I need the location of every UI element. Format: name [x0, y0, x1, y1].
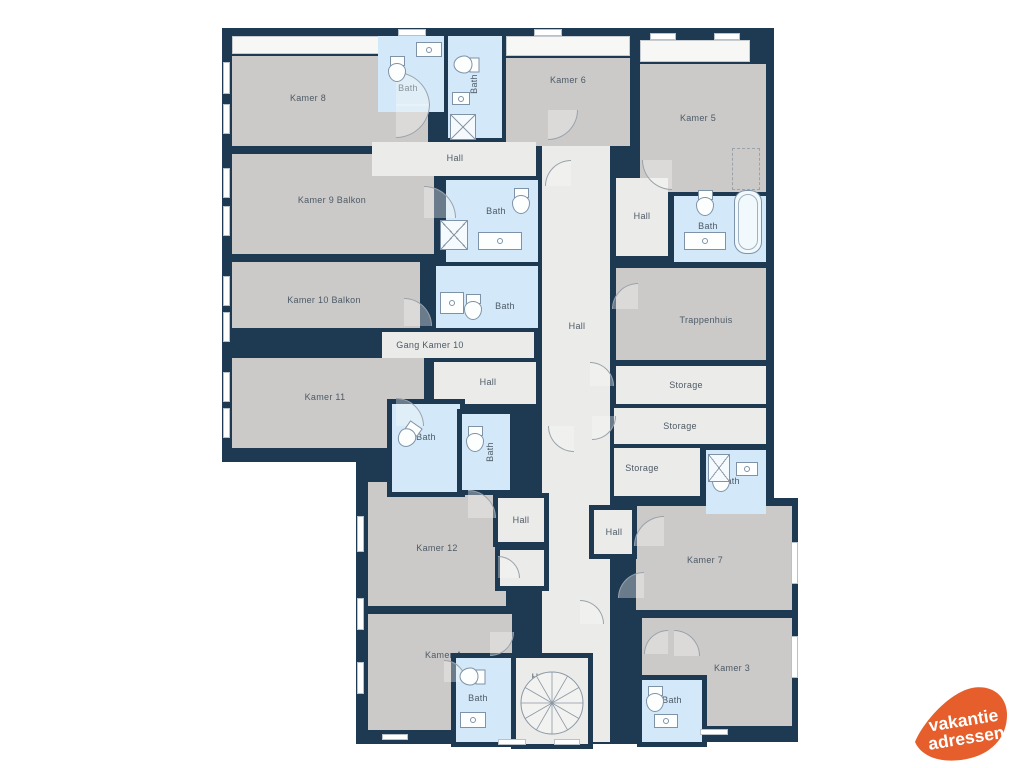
window-mark — [398, 29, 426, 36]
label-kamer-7: Kamer 7 — [687, 555, 723, 565]
toilet-icon — [461, 668, 486, 686]
toilet-icon — [388, 56, 406, 81]
window-mark — [791, 636, 798, 678]
window-mark — [554, 739, 580, 745]
floor-plan-page: Kamer 8Kamer 9 BalkonKamer 10 BalkonKame… — [0, 0, 1024, 768]
sink-icon — [416, 42, 442, 57]
label-storage-3: Storage — [625, 463, 659, 473]
shower-icon — [708, 454, 730, 482]
window-mark — [223, 62, 230, 94]
toilet-bowl — [464, 301, 482, 320]
label-kamer-11: Kamer 11 — [305, 392, 346, 402]
label-kamer-8: Kamer 8 — [290, 93, 326, 103]
balkon-kamer-6 — [506, 36, 630, 56]
area-hall-upper-right: Hall — [616, 178, 668, 256]
window-mark — [700, 729, 728, 735]
label-storage-2: Storage — [663, 421, 697, 431]
label-hall-central: Hall — [569, 321, 586, 331]
toilet-bowl — [454, 56, 473, 74]
area-storage-1: Storage — [616, 366, 766, 404]
label-kamer-5: Kamer 5 — [680, 113, 716, 123]
shower-icon — [440, 220, 468, 250]
area-hall-mid: Hall — [434, 362, 536, 404]
floor-plan: Kamer 8Kamer 9 BalkonKamer 10 BalkonKame… — [0, 0, 1024, 768]
label-kamer-6: Kamer 6 — [550, 75, 586, 85]
sink-icon — [654, 714, 678, 728]
label-bath-kamer-3: Bath — [662, 695, 682, 705]
label-bath-kamer-4: Bath — [468, 693, 488, 703]
label-storage-1: Storage — [669, 380, 703, 390]
label-bath-kamer-6: Bath — [469, 74, 479, 94]
window-mark — [223, 312, 230, 342]
sink-icon — [460, 712, 486, 728]
toilet-bowl — [466, 433, 484, 452]
label-kamer-3: Kamer 3 — [714, 663, 750, 673]
area-storage-3: Storage — [614, 448, 700, 496]
label-hall-kamer-7: Hall — [606, 527, 623, 537]
area-storage-2: Storage — [614, 408, 766, 444]
window-mark — [650, 33, 676, 40]
toilet-bowl — [388, 63, 406, 82]
window-mark — [498, 739, 526, 745]
window-mark — [534, 29, 562, 36]
bathtub-icon — [734, 190, 762, 254]
label-kamer-10: Kamer 10 Balkon — [287, 295, 361, 305]
sink-icon — [478, 232, 522, 250]
label-kamer-9: Kamer 9 Balkon — [298, 195, 366, 205]
closet-outline — [732, 148, 760, 190]
window-mark — [223, 372, 230, 402]
window-mark — [223, 168, 230, 198]
window-mark — [223, 104, 230, 134]
area-gang-kamer-10: Gang Kamer 10 — [382, 332, 534, 358]
label-bath-kamer-5: Bath — [698, 221, 718, 231]
label-hall-kamer-12: Hall — [513, 515, 530, 525]
label-trappenhuis: Trappenhuis — [680, 315, 733, 325]
toilet-icon — [466, 426, 484, 451]
balkon-kamer-5 — [640, 40, 750, 62]
toilet-icon — [646, 686, 664, 711]
area-hall-kamer-12: Hall — [498, 498, 544, 542]
window-mark — [357, 662, 364, 694]
toilet-bowl — [696, 197, 714, 216]
sink-icon — [736, 462, 758, 476]
toilet-bowl — [512, 195, 530, 214]
toilet-icon — [696, 190, 714, 215]
label-hall-upper-right: Hall — [634, 211, 651, 221]
label-gang-kamer-10: Gang Kamer 10 — [396, 340, 463, 350]
label-kamer-12: Kamer 12 — [416, 543, 457, 553]
window-mark — [357, 598, 364, 630]
area-trappenhuis: Trappenhuis — [616, 268, 766, 360]
logo-blob-svg: vakantie adressen — [908, 684, 1014, 768]
window-mark — [714, 33, 740, 40]
toilet-icon — [512, 188, 530, 213]
label-bath-kamer-12: Bath — [485, 442, 495, 462]
area-kamer-10: Kamer 10 Balkon — [232, 262, 420, 328]
label-bath-kamer-10: Bath — [495, 301, 515, 311]
spiral-staircase — [519, 670, 585, 736]
label-bath-kamer-9: Bath — [486, 206, 506, 216]
toilet-bowl — [460, 668, 479, 686]
vakantieadressen-logo: vakantie adressen — [908, 684, 1014, 768]
window-mark — [382, 734, 408, 740]
shower-icon — [450, 114, 476, 140]
area-hall-central: Hall — [542, 146, 610, 742]
label-hall-mid: Hall — [480, 377, 497, 387]
sink-icon — [452, 92, 470, 105]
area-kamer-6: Kamer 6 — [506, 58, 630, 146]
toilet-icon — [464, 294, 482, 319]
window-mark — [357, 516, 364, 552]
toilet-icon — [455, 56, 480, 74]
sink-icon — [684, 232, 726, 250]
area-hall-kamer-7: Hall — [594, 510, 632, 554]
window-mark — [223, 206, 230, 236]
area-hall-top: Hall — [372, 142, 536, 176]
window-mark — [791, 542, 798, 584]
window-mark — [223, 276, 230, 306]
sink-icon — [440, 292, 464, 314]
label-hall-top: Hall — [447, 153, 464, 163]
toilet-bowl — [646, 693, 664, 712]
window-mark — [223, 408, 230, 438]
